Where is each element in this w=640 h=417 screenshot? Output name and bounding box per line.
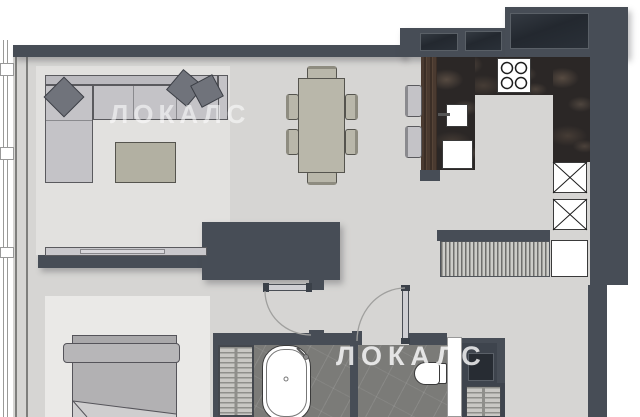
kitchen-wood-counter-icon [421, 57, 437, 172]
vanity-basin [468, 353, 494, 381]
dining-chair-icon [345, 94, 358, 120]
wall-right-upper [590, 57, 628, 285]
sofa-seam [176, 86, 177, 119]
dining-chair-icon [307, 171, 337, 185]
dining-table-icon [298, 78, 345, 173]
balcony-glazing-line [3, 40, 8, 417]
door-leaf-icon [265, 284, 312, 291]
bar-stool-icon [405, 85, 422, 117]
bath-shelf-icon [218, 345, 254, 417]
bar-stool-icon [405, 126, 422, 158]
wall-top-main [13, 45, 405, 57]
window-sill-block [0, 247, 14, 258]
stove-icon [497, 58, 531, 93]
sideboard-recess [80, 249, 165, 254]
bathroom-divider-wall [350, 345, 358, 417]
bathroom-wall-top-right [409, 333, 447, 345]
shower-partition [447, 337, 462, 417]
window-inset-panel [510, 13, 589, 49]
sink-faucet-icon [438, 113, 450, 116]
door-jamb [352, 331, 362, 345]
sofa-seats [93, 85, 219, 120]
tall-cabinet-icon [553, 199, 587, 230]
coffee-table-icon [115, 142, 176, 183]
floorplan-canvas: ЛОКАЛС ЛОКАЛС [0, 0, 640, 417]
bathtub-inner-line [266, 349, 307, 417]
sofa-armrest [218, 75, 228, 120]
counter-end-cap [420, 170, 440, 181]
sofa-back [45, 75, 218, 85]
bed-icon [72, 362, 177, 417]
sofa-seam [46, 120, 92, 121]
closet-block [202, 222, 340, 280]
sofa-seam [133, 86, 134, 119]
towel-radiator-icon [466, 386, 501, 417]
toilet-icon [414, 362, 440, 385]
door-cap [263, 283, 269, 292]
sofa-chaise [45, 85, 93, 183]
tall-cabinet-icon [553, 162, 587, 193]
window-sill-block [0, 147, 14, 160]
kitchen-countertop-right [553, 57, 590, 162]
entry-wall-bar [437, 230, 550, 241]
door-cap [401, 285, 410, 291]
balcony-radiator-strip [15, 57, 28, 417]
window-inset-panel [420, 33, 458, 51]
bathroom-wall-top-left [213, 333, 355, 345]
interior-wall-living [38, 255, 205, 268]
dining-chair-icon [345, 129, 358, 155]
entry-slat-console-icon [440, 241, 550, 277]
window-sill-block [0, 63, 14, 76]
bed-pillow-band [63, 343, 180, 363]
wall-right-lower [588, 285, 607, 417]
entry-cabinet-icon [551, 240, 588, 277]
dishwasher-icon [442, 140, 473, 169]
door-cap [401, 338, 410, 344]
window-inset-panel [465, 31, 502, 51]
door-leaf-icon [402, 288, 409, 341]
door-cap [306, 283, 312, 292]
